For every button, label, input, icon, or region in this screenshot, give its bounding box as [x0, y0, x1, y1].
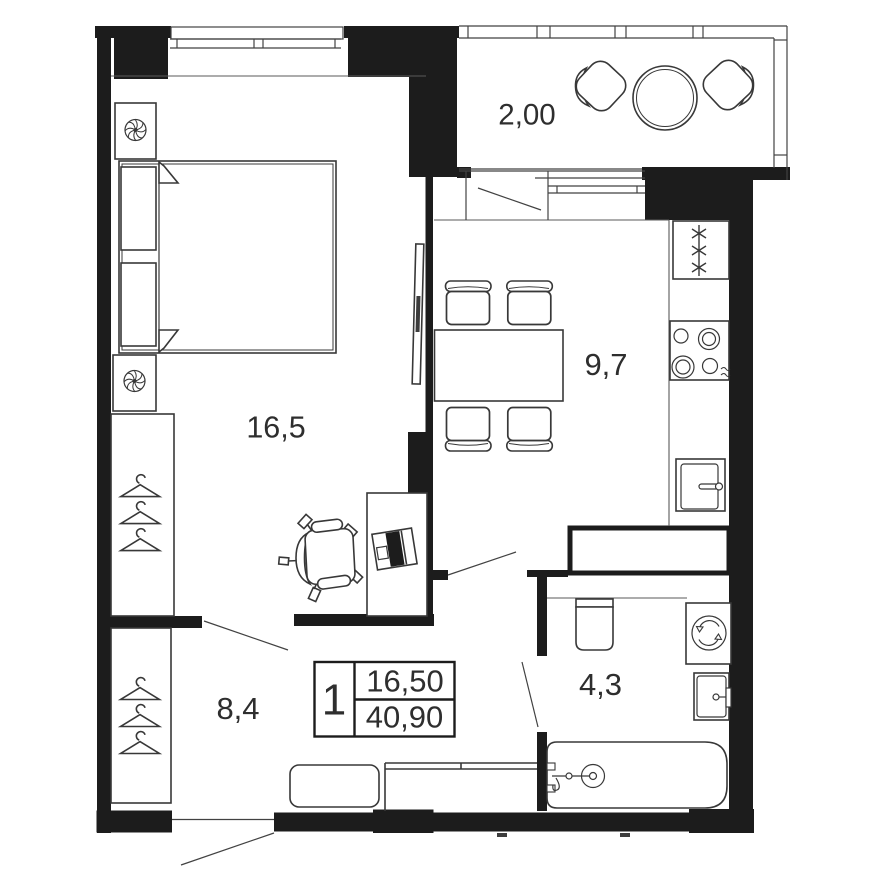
- svg-text:9,7: 9,7: [584, 347, 627, 382]
- svg-text:16,50: 16,50: [366, 663, 444, 698]
- svg-text:4,3: 4,3: [579, 667, 622, 702]
- svg-text:8,4: 8,4: [216, 691, 259, 726]
- svg-text:16,5: 16,5: [246, 411, 305, 445]
- svg-text:2,00: 2,00: [498, 99, 555, 132]
- svg-text:1: 1: [322, 676, 346, 725]
- svg-text:40,90: 40,90: [366, 700, 444, 735]
